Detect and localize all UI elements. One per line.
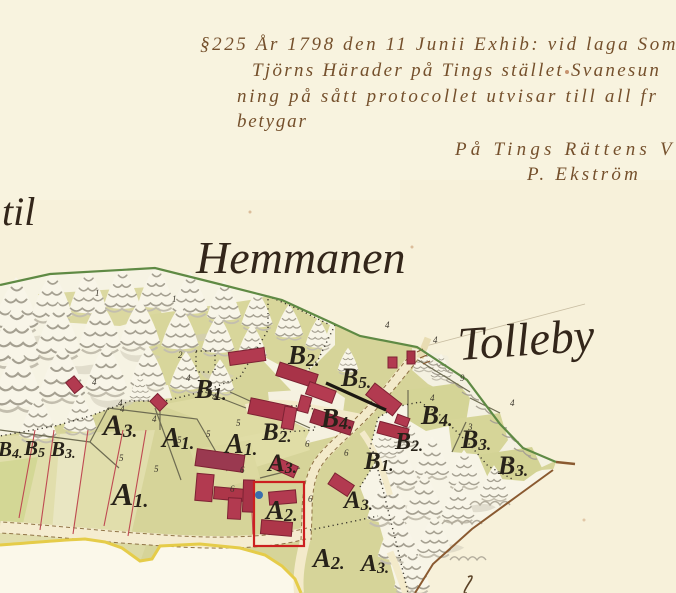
svg-text:betygar: betygar — [237, 111, 308, 132]
svg-text:4: 4 — [433, 335, 438, 345]
svg-text:1: 1 — [172, 294, 177, 304]
svg-text:4: 4 — [186, 373, 191, 383]
svg-text:§225 År 1798 den 11 Junii Exhi: §225 År 1798 den 11 Junii Exhib: vid lag… — [200, 34, 676, 55]
svg-text:6: 6 — [240, 465, 245, 475]
svg-text:Tolleby: Tolleby — [456, 310, 596, 371]
svg-text:1: 1 — [95, 288, 100, 298]
svg-text:5: 5 — [177, 435, 182, 445]
svg-text:til: til — [2, 189, 35, 234]
svg-text:5: 5 — [154, 464, 159, 474]
svg-text:6: 6 — [230, 484, 235, 494]
svg-text:4: 4 — [120, 404, 125, 414]
svg-text:ning på sått protocollet utvis: ning på sått protocollet utvisar till al… — [237, 86, 659, 107]
svg-text:5: 5 — [119, 453, 124, 463]
svg-text:4: 4 — [152, 414, 157, 424]
svg-text:4: 4 — [510, 398, 515, 408]
svg-text:4: 4 — [385, 320, 390, 330]
svg-text:3: 3 — [467, 422, 473, 432]
svg-text:6: 6 — [305, 439, 310, 449]
svg-text:Tjörns Härader på Tings ställe: Tjörns Härader på Tings stället Svanesun — [252, 60, 661, 81]
svg-text:5: 5 — [236, 418, 241, 428]
svg-text:6: 6 — [344, 448, 349, 458]
svg-text:9: 9 — [460, 373, 465, 383]
svg-text:På Tings Rättens V: På Tings Rättens V — [454, 139, 676, 160]
svg-text:3: 3 — [507, 455, 513, 465]
svg-text:6: 6 — [308, 494, 313, 504]
svg-text:4: 4 — [92, 377, 97, 387]
svg-text:4: 4 — [212, 392, 217, 402]
svg-text:2: 2 — [178, 350, 183, 360]
svg-text:4: 4 — [430, 393, 435, 403]
svg-text:P. Ekström: P. Ekström — [526, 164, 641, 185]
svg-text:5: 5 — [206, 429, 211, 439]
svg-text:Hemmanen: Hemmanen — [195, 232, 406, 283]
